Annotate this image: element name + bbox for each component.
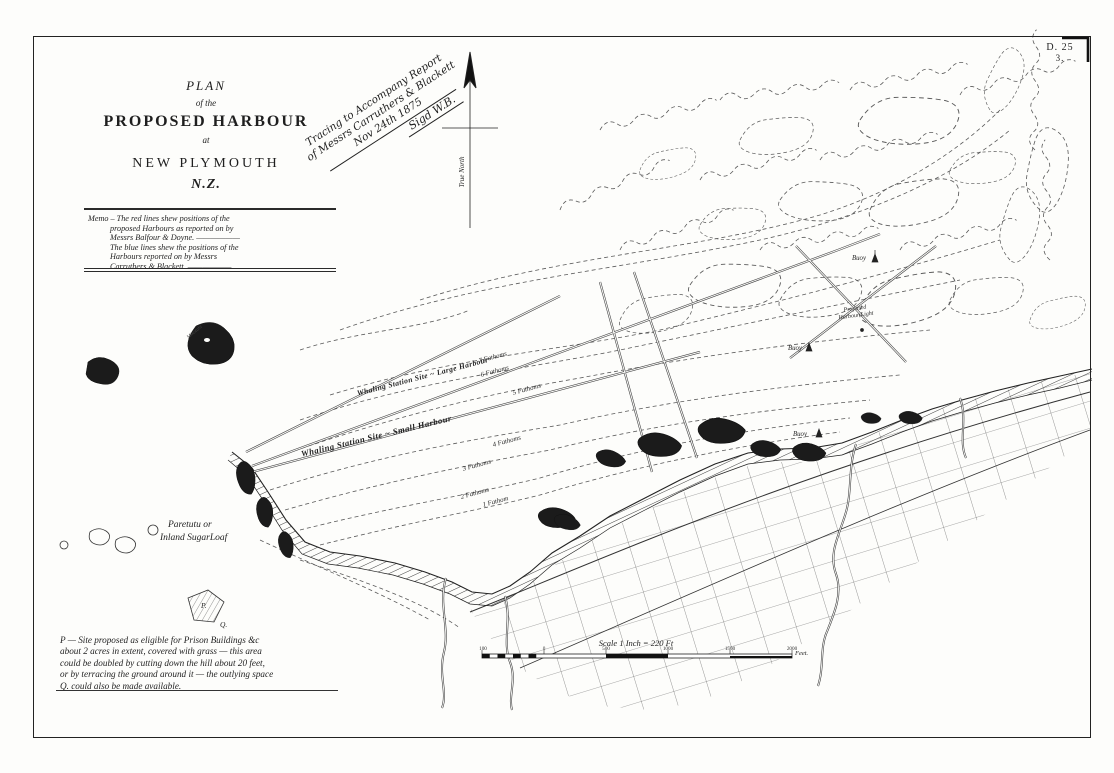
memo-rule-bottom [84,268,336,272]
label-buoy-north: Buoy [852,255,866,262]
scale-unit: Feet. [795,650,808,657]
memo-line: Messrs Balfour & Doyne. —————— [88,233,344,243]
title-country: N.Z. [88,177,324,193]
true-north-label: True North [458,148,466,196]
sheet-number: 3. [1036,53,1084,63]
label-sugarloaf: Inland SugarLoaf [160,533,227,543]
scale-title: Scale 1 Inch = 220 Ft [556,638,716,648]
memo-line: Memo – The red lines shew positions of t… [88,214,344,224]
title-plan: PLAN [88,78,324,94]
title-at: at [88,135,324,145]
scale-tick: 0 [531,646,557,652]
label-site-p: P. [201,601,207,610]
note-line: could be doubled by cutting down the hil… [60,658,360,669]
memo-line: The blue lines shew the positions of the [88,243,344,253]
label-paretutu: Paretutu or [168,520,212,530]
scale-tick: 100 [470,646,496,652]
sheet-reference: D. 25 3. [1036,42,1084,63]
scale-tick: 1000 [655,646,681,652]
memo-line: proposed Harbours as reported on by [88,224,344,234]
prison-site-note: P — Site proposed as eligible for Prison… [60,635,360,692]
memo-rule-top [84,208,336,210]
scale-tick: 1500 [717,646,743,652]
note-line: or by terracing the ground around it — t… [60,669,360,680]
scale-tick: 500 [593,646,619,652]
map-sheet: D. 25 3. PLAN of the PROPOSED HARBOUR at… [0,0,1114,773]
label-buoy-south: Buoy [793,431,807,438]
title-place: NEW PLYMOUTH [88,156,324,172]
note-line: P — Site proposed as eligible for Prison… [60,635,360,646]
title-block: PLAN of the PROPOSED HARBOUR at NEW PLYM… [88,78,324,193]
label-site-q: Q. [220,620,227,629]
label-buoy-mid: Buoy [788,345,802,352]
note-rule [56,690,338,691]
note-line: about 2 acres in extent, covered with gr… [60,646,360,657]
memo-line: Harbours reported on by Messrs [88,252,344,262]
memo-block: Memo – The red lines shew positions of t… [88,214,344,272]
title-of-the: of the [88,98,324,108]
sheet-code: D. 25 [1036,42,1084,53]
title-main: PROPOSED HARBOUR [88,113,324,131]
